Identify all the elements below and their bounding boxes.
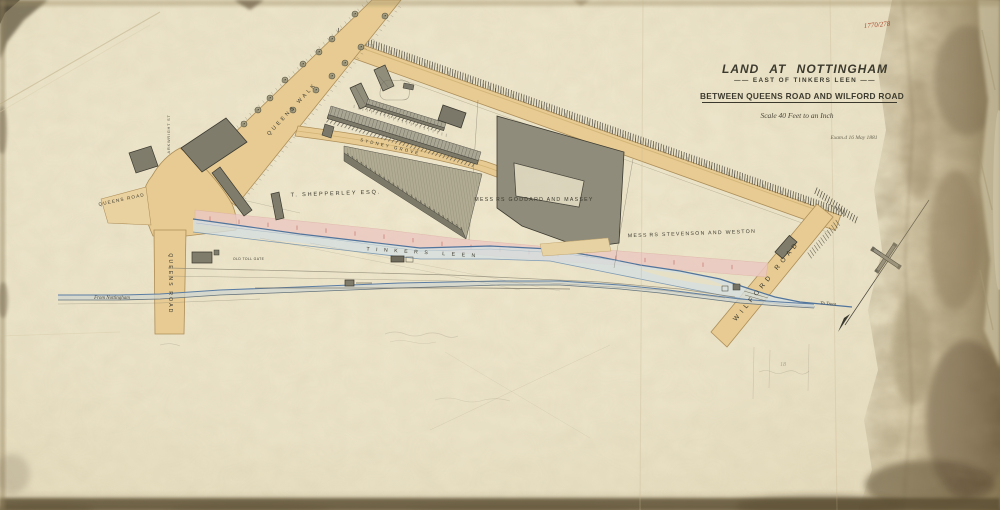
svg-text:From Nottingham: From Nottingham — [93, 296, 130, 301]
svg-text:MESS RS GODDARD AND MASSEY: MESS RS GODDARD AND MASSEY — [474, 197, 593, 203]
svg-text:Scale 40 Feet to an Inch: Scale 40 Feet to an Inch — [760, 111, 833, 120]
svg-text:BETWEEN QUEENS ROAD AND WILFOR: BETWEEN QUEENS ROAD AND WILFORD ROAD — [700, 91, 904, 101]
svg-text:18: 18 — [780, 362, 786, 368]
svg-text:QUEENS ROAD: QUEENS ROAD — [167, 253, 173, 314]
svg-text:LAND AT NOTTINGHAM: LAND AT NOTTINGHAM — [722, 62, 888, 76]
svg-text:ARKWRIGHT ST: ARKWRIGHT ST — [166, 115, 171, 154]
svg-text:Exam.d 16 May 1881: Exam.d 16 May 1881 — [829, 135, 877, 141]
svg-text:OLD TOLL GATE: OLD TOLL GATE — [233, 257, 265, 261]
svg-text:—— EAST OF TINKERS LEEN ——: —— EAST OF TINKERS LEEN —— — [734, 77, 876, 84]
